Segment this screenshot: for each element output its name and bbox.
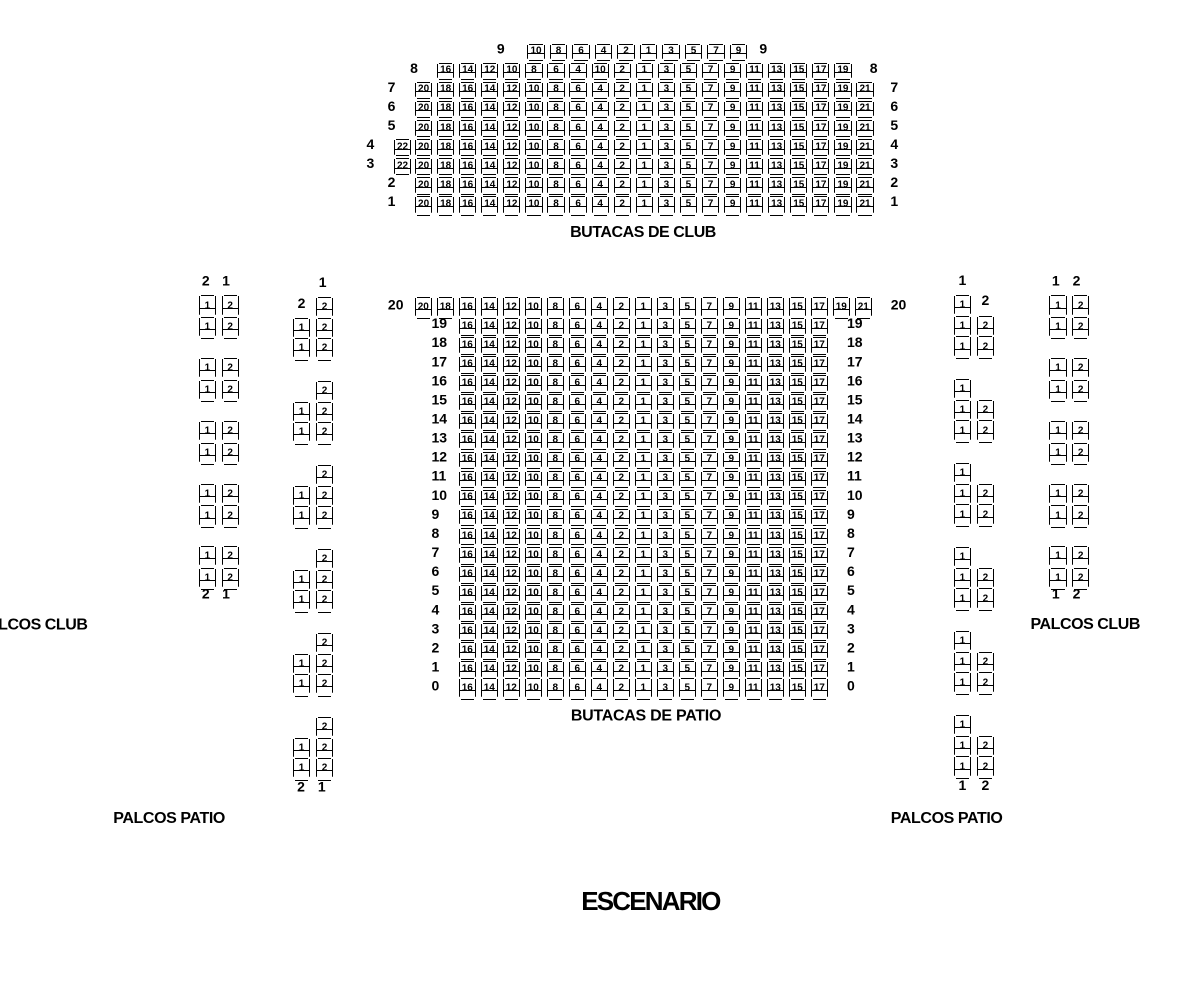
svg-text:15: 15 xyxy=(792,683,804,694)
svg-text:6: 6 xyxy=(575,435,581,446)
svg-text:1: 1 xyxy=(960,594,966,605)
svg-text:8: 8 xyxy=(553,645,559,656)
svg-text:15: 15 xyxy=(792,607,804,618)
svg-text:2: 2 xyxy=(619,161,625,172)
svg-text:9: 9 xyxy=(729,664,735,675)
svg-text:20: 20 xyxy=(418,199,430,210)
svg-text:3: 3 xyxy=(664,123,670,134)
svg-text:1: 1 xyxy=(641,588,647,599)
svg-text:15: 15 xyxy=(792,588,804,599)
svg-text:1: 1 xyxy=(960,405,966,416)
svg-text:7: 7 xyxy=(707,416,713,427)
svg-text:16: 16 xyxy=(462,340,474,351)
svg-text:2: 2 xyxy=(227,322,233,333)
svg-text:12: 12 xyxy=(506,378,518,389)
svg-text:6: 6 xyxy=(890,98,898,114)
svg-text:1: 1 xyxy=(890,193,898,209)
svg-text:21: 21 xyxy=(859,199,871,210)
svg-text:12: 12 xyxy=(506,123,518,134)
svg-text:13: 13 xyxy=(770,454,782,465)
svg-text:8: 8 xyxy=(847,525,855,541)
svg-text:2: 2 xyxy=(1073,586,1081,602)
svg-text:6: 6 xyxy=(575,645,581,656)
svg-text:2: 2 xyxy=(619,302,625,313)
svg-text:10: 10 xyxy=(528,569,540,580)
svg-text:14: 14 xyxy=(484,588,496,599)
svg-text:19: 19 xyxy=(432,315,448,331)
svg-text:3: 3 xyxy=(663,416,669,427)
svg-text:1: 1 xyxy=(960,678,966,689)
svg-text:12: 12 xyxy=(432,449,448,465)
svg-text:12: 12 xyxy=(506,492,518,503)
svg-text:5: 5 xyxy=(686,142,692,153)
svg-text:11: 11 xyxy=(748,550,759,561)
svg-text:14: 14 xyxy=(484,626,496,637)
svg-text:1: 1 xyxy=(1055,489,1061,500)
svg-text:16: 16 xyxy=(462,473,474,484)
svg-text:4: 4 xyxy=(597,569,603,580)
svg-text:13: 13 xyxy=(771,65,783,76)
svg-text:11: 11 xyxy=(748,569,759,580)
svg-text:11: 11 xyxy=(748,683,759,694)
svg-text:1: 1 xyxy=(960,426,966,437)
svg-text:14: 14 xyxy=(484,397,496,408)
svg-text:8: 8 xyxy=(432,525,440,541)
svg-text:16: 16 xyxy=(462,511,474,522)
svg-text:3: 3 xyxy=(663,302,669,313)
svg-text:7: 7 xyxy=(707,511,713,522)
svg-text:1: 1 xyxy=(1052,586,1060,602)
svg-text:1: 1 xyxy=(641,416,647,427)
svg-text:12: 12 xyxy=(484,65,496,76)
svg-text:12: 12 xyxy=(847,449,863,465)
svg-text:1: 1 xyxy=(299,407,305,418)
svg-text:7: 7 xyxy=(707,321,713,332)
svg-text:BUTACAS DE PATIO: BUTACAS DE PATIO xyxy=(571,708,721,725)
svg-text:3: 3 xyxy=(367,155,375,171)
svg-text:10: 10 xyxy=(528,683,540,694)
svg-text:6: 6 xyxy=(575,340,581,351)
svg-text:3: 3 xyxy=(663,359,669,370)
svg-text:13: 13 xyxy=(770,588,782,599)
svg-text:15: 15 xyxy=(793,142,805,153)
svg-text:16: 16 xyxy=(462,397,474,408)
svg-text:5: 5 xyxy=(685,645,691,656)
svg-text:1: 1 xyxy=(960,342,966,353)
svg-text:14: 14 xyxy=(484,359,496,370)
svg-text:18: 18 xyxy=(440,180,452,191)
svg-text:1: 1 xyxy=(318,779,326,795)
svg-text:13: 13 xyxy=(770,359,782,370)
svg-text:2: 2 xyxy=(322,595,328,606)
svg-text:4: 4 xyxy=(597,645,603,656)
svg-text:17: 17 xyxy=(814,435,826,446)
svg-text:8: 8 xyxy=(531,65,537,76)
svg-text:1: 1 xyxy=(205,301,211,312)
svg-text:5: 5 xyxy=(691,46,697,57)
svg-text:20: 20 xyxy=(418,142,430,153)
svg-text:5: 5 xyxy=(432,582,440,598)
svg-text:1: 1 xyxy=(642,161,648,172)
svg-text:2: 2 xyxy=(983,405,989,416)
svg-text:17: 17 xyxy=(814,492,826,503)
svg-text:13: 13 xyxy=(770,511,782,522)
svg-text:14: 14 xyxy=(484,492,496,503)
svg-text:2: 2 xyxy=(322,343,328,354)
svg-text:14: 14 xyxy=(484,683,496,694)
svg-text:6: 6 xyxy=(575,664,581,675)
svg-text:2: 2 xyxy=(619,454,625,465)
svg-text:7: 7 xyxy=(708,103,714,114)
svg-text:19: 19 xyxy=(847,315,863,331)
svg-text:15: 15 xyxy=(793,65,805,76)
svg-text:15: 15 xyxy=(432,391,448,407)
svg-text:5: 5 xyxy=(685,359,691,370)
svg-text:13: 13 xyxy=(770,531,782,542)
svg-text:16: 16 xyxy=(462,416,474,427)
svg-text:1: 1 xyxy=(299,427,305,438)
svg-text:7: 7 xyxy=(707,588,713,599)
svg-text:2: 2 xyxy=(982,292,990,308)
svg-text:15: 15 xyxy=(793,161,805,172)
svg-text:11: 11 xyxy=(748,664,759,675)
svg-text:2: 2 xyxy=(619,397,625,408)
svg-text:1: 1 xyxy=(960,657,966,668)
svg-text:1: 1 xyxy=(1055,385,1061,396)
svg-text:2: 2 xyxy=(619,531,625,542)
svg-text:4: 4 xyxy=(597,199,603,210)
svg-text:5: 5 xyxy=(685,664,691,675)
svg-text:4: 4 xyxy=(597,302,603,313)
svg-text:3: 3 xyxy=(663,340,669,351)
svg-text:13: 13 xyxy=(770,569,782,580)
svg-text:17: 17 xyxy=(815,84,827,95)
svg-text:2: 2 xyxy=(1078,551,1084,562)
svg-text:1: 1 xyxy=(319,274,327,290)
svg-text:8: 8 xyxy=(553,473,559,484)
svg-text:5: 5 xyxy=(686,65,692,76)
svg-text:13: 13 xyxy=(770,435,782,446)
svg-text:1: 1 xyxy=(960,510,966,521)
svg-text:19: 19 xyxy=(837,65,849,76)
svg-text:1: 1 xyxy=(205,363,211,374)
svg-text:7: 7 xyxy=(708,161,714,172)
svg-text:2: 2 xyxy=(619,321,625,332)
svg-text:1: 1 xyxy=(205,551,211,562)
svg-text:13: 13 xyxy=(771,142,783,153)
svg-text:2: 2 xyxy=(619,511,625,522)
svg-text:5: 5 xyxy=(685,378,691,389)
svg-text:9: 9 xyxy=(729,473,735,484)
svg-text:6: 6 xyxy=(575,588,581,599)
svg-text:17: 17 xyxy=(814,550,826,561)
svg-text:8: 8 xyxy=(553,550,559,561)
svg-text:7: 7 xyxy=(707,359,713,370)
svg-text:12: 12 xyxy=(506,531,518,542)
svg-text:12: 12 xyxy=(506,588,518,599)
svg-text:13: 13 xyxy=(770,416,782,427)
svg-text:8: 8 xyxy=(553,84,559,95)
svg-text:6: 6 xyxy=(575,397,581,408)
svg-text:18: 18 xyxy=(440,142,452,153)
svg-text:1: 1 xyxy=(299,323,305,334)
svg-text:PALCOS CLUB: PALCOS CLUB xyxy=(1031,616,1140,633)
svg-text:5: 5 xyxy=(685,511,691,522)
svg-text:10: 10 xyxy=(528,359,540,370)
svg-text:8: 8 xyxy=(553,397,559,408)
svg-text:20: 20 xyxy=(418,180,430,191)
svg-text:11: 11 xyxy=(748,359,759,370)
svg-text:2: 2 xyxy=(983,489,989,500)
svg-text:2: 2 xyxy=(982,777,990,793)
svg-text:1: 1 xyxy=(960,468,966,479)
svg-text:16: 16 xyxy=(847,372,863,388)
svg-text:12: 12 xyxy=(506,626,518,637)
svg-text:1: 1 xyxy=(959,272,967,288)
svg-text:19: 19 xyxy=(837,123,849,134)
svg-text:2: 2 xyxy=(619,550,625,561)
svg-text:4: 4 xyxy=(601,46,607,57)
svg-text:1: 1 xyxy=(1055,426,1061,437)
svg-text:5: 5 xyxy=(685,550,691,561)
svg-text:14: 14 xyxy=(484,435,496,446)
svg-text:16: 16 xyxy=(462,103,474,114)
svg-text:1: 1 xyxy=(960,573,966,584)
svg-text:1: 1 xyxy=(1055,573,1061,584)
svg-text:8: 8 xyxy=(553,123,559,134)
svg-text:9: 9 xyxy=(736,46,742,57)
svg-text:17: 17 xyxy=(814,302,826,313)
svg-text:5: 5 xyxy=(686,84,692,95)
svg-text:6: 6 xyxy=(575,359,581,370)
svg-text:9: 9 xyxy=(730,103,736,114)
svg-text:8: 8 xyxy=(553,378,559,389)
svg-text:6: 6 xyxy=(575,626,581,637)
svg-text:9: 9 xyxy=(497,41,505,57)
svg-text:7: 7 xyxy=(388,79,396,95)
svg-text:2: 2 xyxy=(297,779,305,795)
svg-text:14: 14 xyxy=(484,123,496,134)
svg-text:2: 2 xyxy=(388,174,396,190)
svg-text:15: 15 xyxy=(792,302,804,313)
svg-text:10: 10 xyxy=(432,487,448,503)
svg-text:7: 7 xyxy=(707,397,713,408)
svg-text:21: 21 xyxy=(858,302,870,313)
svg-text:17: 17 xyxy=(814,378,826,389)
svg-text:10: 10 xyxy=(528,550,540,561)
svg-text:8: 8 xyxy=(553,435,559,446)
svg-text:4: 4 xyxy=(597,473,603,484)
svg-text:10: 10 xyxy=(847,487,863,503)
svg-text:2: 2 xyxy=(322,743,328,754)
svg-text:1: 1 xyxy=(205,426,211,437)
svg-text:1: 1 xyxy=(222,586,230,602)
svg-text:12: 12 xyxy=(506,142,518,153)
svg-text:7: 7 xyxy=(707,531,713,542)
svg-text:2: 2 xyxy=(983,741,989,752)
svg-text:1: 1 xyxy=(960,489,966,500)
svg-text:4: 4 xyxy=(890,136,898,152)
svg-text:7: 7 xyxy=(707,302,713,313)
svg-text:14: 14 xyxy=(432,411,448,427)
svg-text:9: 9 xyxy=(729,397,735,408)
svg-text:2: 2 xyxy=(322,323,328,334)
svg-text:10: 10 xyxy=(506,65,518,76)
svg-text:5: 5 xyxy=(685,569,691,580)
svg-text:1: 1 xyxy=(960,762,966,773)
svg-text:3: 3 xyxy=(663,588,669,599)
svg-text:9: 9 xyxy=(729,531,735,542)
svg-text:17: 17 xyxy=(815,65,827,76)
svg-text:12: 12 xyxy=(506,321,518,332)
svg-text:13: 13 xyxy=(770,473,782,484)
svg-text:15: 15 xyxy=(792,492,804,503)
svg-text:7: 7 xyxy=(708,199,714,210)
svg-text:18: 18 xyxy=(440,103,452,114)
svg-text:1: 1 xyxy=(641,645,647,656)
svg-text:4: 4 xyxy=(597,435,603,446)
svg-text:9: 9 xyxy=(432,506,440,522)
svg-text:15: 15 xyxy=(792,359,804,370)
svg-text:17: 17 xyxy=(815,199,827,210)
svg-text:2: 2 xyxy=(202,273,210,289)
svg-text:14: 14 xyxy=(484,569,496,580)
svg-text:16: 16 xyxy=(462,588,474,599)
svg-text:5: 5 xyxy=(686,180,692,191)
svg-text:14: 14 xyxy=(484,664,496,675)
svg-text:5: 5 xyxy=(847,582,855,598)
svg-text:10: 10 xyxy=(528,142,540,153)
svg-text:16: 16 xyxy=(462,180,474,191)
svg-text:12: 12 xyxy=(506,359,518,370)
svg-text:2: 2 xyxy=(322,302,328,313)
svg-text:4: 4 xyxy=(575,65,581,76)
svg-text:5: 5 xyxy=(685,588,691,599)
svg-text:13: 13 xyxy=(847,430,863,446)
svg-text:3: 3 xyxy=(663,645,669,656)
svg-text:2: 2 xyxy=(227,385,233,396)
svg-text:5: 5 xyxy=(388,117,396,133)
svg-text:2: 2 xyxy=(227,551,233,562)
svg-text:8: 8 xyxy=(553,103,559,114)
svg-text:4: 4 xyxy=(597,664,603,675)
svg-text:7: 7 xyxy=(707,550,713,561)
svg-text:16: 16 xyxy=(462,626,474,637)
svg-text:10: 10 xyxy=(528,397,540,408)
svg-text:16: 16 xyxy=(462,161,474,172)
svg-text:10: 10 xyxy=(528,302,540,313)
svg-text:14: 14 xyxy=(484,142,496,153)
svg-text:2: 2 xyxy=(1073,273,1081,289)
svg-text:10: 10 xyxy=(528,454,540,465)
svg-text:6: 6 xyxy=(575,473,581,484)
svg-text:13: 13 xyxy=(770,302,782,313)
svg-text:8: 8 xyxy=(553,180,559,191)
svg-text:13: 13 xyxy=(771,180,783,191)
svg-text:2: 2 xyxy=(619,359,625,370)
svg-text:2: 2 xyxy=(983,342,989,353)
svg-text:6: 6 xyxy=(575,492,581,503)
svg-text:15: 15 xyxy=(792,340,804,351)
svg-text:3: 3 xyxy=(847,620,855,636)
svg-text:1: 1 xyxy=(1055,301,1061,312)
svg-text:16: 16 xyxy=(462,550,474,561)
svg-text:21: 21 xyxy=(859,161,871,172)
svg-text:2: 2 xyxy=(619,664,625,675)
svg-text:1: 1 xyxy=(642,142,648,153)
svg-text:11: 11 xyxy=(748,416,759,427)
svg-text:2: 2 xyxy=(322,511,328,522)
svg-text:8: 8 xyxy=(553,569,559,580)
svg-text:15: 15 xyxy=(792,397,804,408)
svg-text:1: 1 xyxy=(641,321,647,332)
svg-text:22: 22 xyxy=(397,161,409,172)
svg-text:3: 3 xyxy=(663,511,669,522)
svg-text:6: 6 xyxy=(432,563,440,579)
svg-text:15: 15 xyxy=(792,435,804,446)
svg-text:6: 6 xyxy=(847,563,855,579)
svg-text:13: 13 xyxy=(770,321,782,332)
svg-text:3: 3 xyxy=(663,531,669,542)
svg-text:1: 1 xyxy=(299,511,305,522)
svg-text:7: 7 xyxy=(707,454,713,465)
svg-text:9: 9 xyxy=(729,454,735,465)
svg-text:4: 4 xyxy=(597,416,603,427)
svg-text:15: 15 xyxy=(793,84,805,95)
svg-text:18: 18 xyxy=(440,161,452,172)
svg-text:15: 15 xyxy=(792,645,804,656)
svg-text:7: 7 xyxy=(432,544,440,560)
svg-text:16: 16 xyxy=(432,372,448,388)
svg-text:1: 1 xyxy=(960,552,966,563)
svg-text:1: 1 xyxy=(960,720,966,731)
svg-text:17: 17 xyxy=(814,454,826,465)
svg-text:7: 7 xyxy=(707,645,713,656)
svg-text:20: 20 xyxy=(418,302,430,313)
svg-text:2: 2 xyxy=(983,678,989,689)
svg-text:1: 1 xyxy=(205,489,211,500)
svg-text:14: 14 xyxy=(484,473,496,484)
svg-text:9: 9 xyxy=(730,123,736,134)
svg-text:2: 2 xyxy=(1078,511,1084,522)
svg-text:14: 14 xyxy=(484,511,496,522)
svg-text:1: 1 xyxy=(641,302,647,313)
svg-text:7: 7 xyxy=(890,79,898,95)
svg-text:14: 14 xyxy=(462,65,474,76)
svg-text:10: 10 xyxy=(528,103,540,114)
svg-text:11: 11 xyxy=(749,199,760,210)
svg-text:14: 14 xyxy=(484,645,496,656)
svg-text:11: 11 xyxy=(749,180,760,191)
svg-text:2: 2 xyxy=(619,103,625,114)
svg-text:14: 14 xyxy=(484,454,496,465)
svg-text:12: 12 xyxy=(506,435,518,446)
svg-text:4: 4 xyxy=(597,359,603,370)
svg-text:20: 20 xyxy=(891,296,907,312)
svg-text:6: 6 xyxy=(575,531,581,542)
svg-text:3: 3 xyxy=(663,378,669,389)
svg-text:PALCOS PATIO: PALCOS PATIO xyxy=(113,810,225,827)
svg-text:12: 12 xyxy=(506,550,518,561)
svg-text:11: 11 xyxy=(748,321,759,332)
svg-text:17: 17 xyxy=(814,626,826,637)
svg-text:11: 11 xyxy=(749,103,760,114)
svg-text:3: 3 xyxy=(663,569,669,580)
svg-text:1: 1 xyxy=(205,573,211,584)
svg-text:15: 15 xyxy=(847,391,863,407)
svg-text:1: 1 xyxy=(299,491,305,502)
svg-text:PALCOS CLUB: PALCOS CLUB xyxy=(0,617,87,634)
